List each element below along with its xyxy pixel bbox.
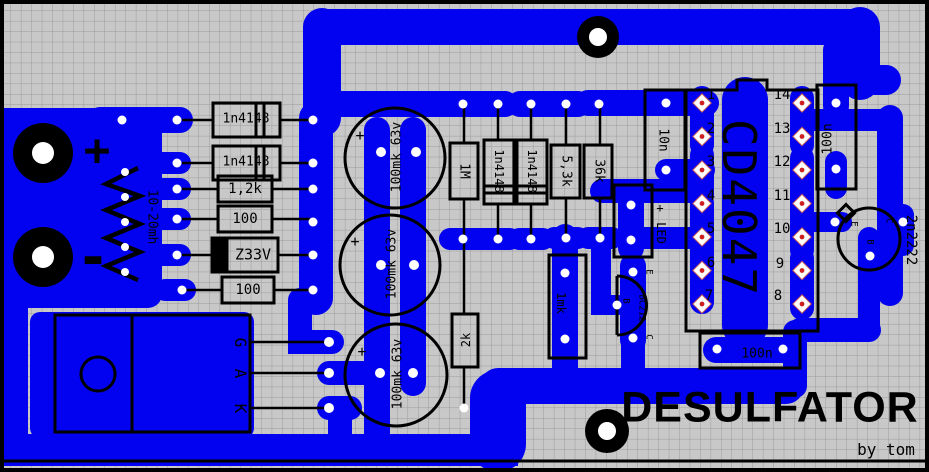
ic-pin-12: 12 <box>774 155 791 169</box>
label-d2: 1n4148 <box>223 156 270 169</box>
scr-pin-g: G <box>232 338 248 349</box>
label-c6: 100n <box>741 348 772 361</box>
board-byline: by tom <box>857 442 915 458</box>
label-c7: 1mk <box>555 292 567 314</box>
label-d1: 1n4148 <box>223 113 270 126</box>
label-c1: 100mk 63v <box>391 122 404 192</box>
ic-pin-6: 6 <box>707 256 715 270</box>
label-q1: BC212 <box>637 294 646 321</box>
label-r5: 5,3k <box>560 155 573 186</box>
q2-pin-c: C <box>884 218 893 223</box>
ic-pin-2: 2 <box>707 122 715 136</box>
copper-scr-pour[interactable] <box>30 312 254 438</box>
ic-pin-11: 11 <box>774 189 791 203</box>
q2-pin-e: E <box>849 221 858 226</box>
label-c5: 100n <box>822 123 835 154</box>
label-c4: 10n <box>657 128 670 151</box>
ic-pin-5: 5 <box>707 222 715 236</box>
ic-pin-13: 13 <box>774 122 791 136</box>
ic-pin-9: 9 <box>776 257 784 271</box>
ic-pin-10: 10 <box>774 222 791 236</box>
label-c3: 100mk 63v <box>392 339 405 409</box>
label-ic-cd4047: CD4047 <box>716 119 762 297</box>
label-r7: 2k <box>460 333 472 347</box>
label-r3: 100 <box>235 283 260 297</box>
label-r1: 1,2k <box>228 182 262 196</box>
label-led: LED <box>655 222 667 244</box>
label-inductor: 10-20mh <box>146 190 159 245</box>
power-plus-mark: + <box>84 129 111 173</box>
label-d3: 1n4148 <box>493 149 505 192</box>
ic-pin-14: 14 <box>774 88 791 102</box>
c1-polarity-mark: + <box>355 129 364 144</box>
label-r6: 36k <box>593 159 606 182</box>
pcb-board-canvas[interactable]: + - 10-20mh 1n4148 1n4148 1,2k 100 Z33V … <box>0 0 929 472</box>
c2-polarity-mark: + <box>350 235 359 250</box>
q1-pin-e: E <box>644 269 653 274</box>
scr-pin-a: A <box>232 369 248 380</box>
label-zener: Z33V <box>235 248 271 263</box>
label-r2: 100 <box>232 212 257 226</box>
label-r4: 1M <box>458 163 471 179</box>
label-q2: 2n2222 <box>904 215 918 266</box>
label-c2: 100mk 63v <box>386 229 399 299</box>
ic-pin-7: 7 <box>705 289 713 303</box>
ic-pin-4: 4 <box>707 189 715 203</box>
ic-pin-3: 3 <box>707 155 715 169</box>
power-minus-mark: - <box>77 231 110 285</box>
c3-polarity-mark: + <box>357 345 366 360</box>
ic-pin-8: 8 <box>774 289 782 303</box>
board-title: DESULFATOR <box>621 387 918 430</box>
label-d4: 1n4148 <box>526 149 538 192</box>
q2-pin-b: B <box>865 239 874 244</box>
q1-pin-c: C <box>644 334 653 339</box>
led-polarity-mark: + <box>656 202 663 214</box>
q1-pin-b: B <box>621 298 630 303</box>
scr-pin-k: K <box>232 404 248 415</box>
ic-pin-1: 1 <box>707 88 715 102</box>
